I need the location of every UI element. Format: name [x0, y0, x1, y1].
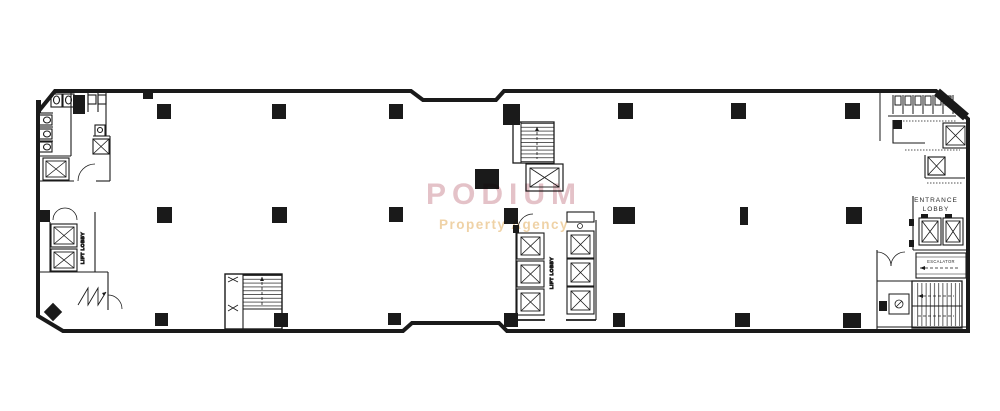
floor-plan-drawing: LIFT LOBBY — [0, 0, 1000, 411]
column — [157, 104, 171, 119]
column — [846, 207, 862, 224]
right-staircase — [912, 281, 962, 328]
wall-stub — [143, 92, 153, 99]
column — [613, 313, 625, 327]
column — [731, 103, 746, 119]
column — [272, 207, 287, 223]
column — [475, 169, 499, 189]
entrance-lobby-label-line2: LOBBY — [923, 206, 950, 213]
column — [389, 207, 403, 222]
column — [843, 313, 861, 328]
column — [735, 313, 750, 327]
central-lift-lobby-label: LIFT LOBBY — [549, 257, 555, 289]
left-lift-lobby-label: LIFT LOBBY — [80, 232, 86, 264]
column — [38, 210, 50, 222]
column — [272, 104, 286, 119]
column — [845, 103, 860, 119]
duct-fill — [73, 95, 85, 114]
column — [740, 207, 748, 225]
column — [389, 104, 403, 119]
column — [274, 313, 288, 327]
building-outline — [38, 91, 968, 331]
column — [155, 313, 168, 326]
entrance-lobby-label-line1: ENTRANCE — [914, 197, 958, 204]
escalator-label: ESCALATOR — [927, 259, 955, 264]
wall-fill — [36, 100, 41, 113]
column — [504, 208, 518, 224]
column — [157, 207, 172, 223]
column — [388, 313, 401, 325]
column — [618, 103, 633, 119]
floor-plan: LIFT LOBBY — [0, 0, 1000, 411]
column — [613, 207, 635, 224]
